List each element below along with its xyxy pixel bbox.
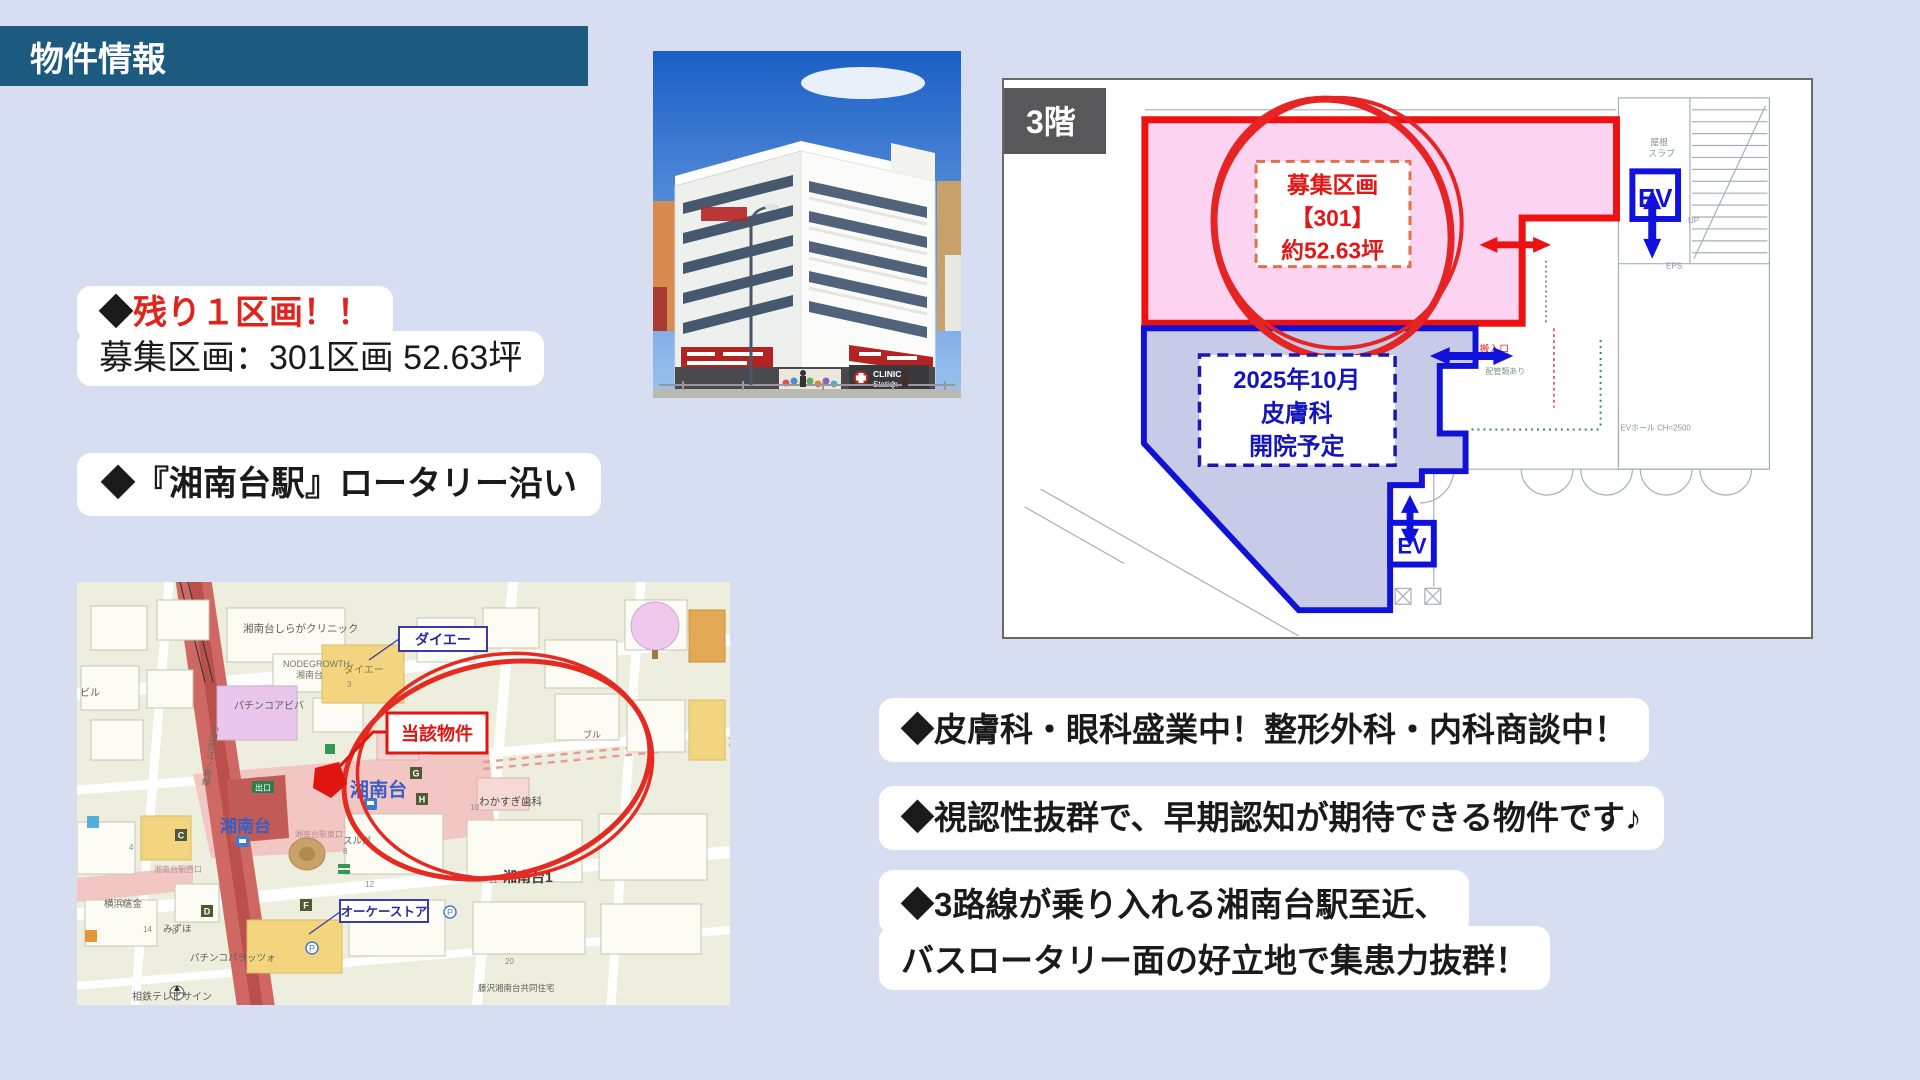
svg-text:湘南台駅西口: 湘南台駅西口 — [154, 864, 202, 874]
svg-text:ブル: ブル — [583, 729, 601, 740]
remaining-text: 残り１区画！！ — [133, 294, 371, 332]
recruit-label-box: 募集区画 【301】 約52.63坪 — [1256, 161, 1410, 266]
svg-text:13: 13 — [121, 899, 130, 908]
floorplan-panel: 3階 — [1002, 78, 1813, 639]
svg-text:ダイエー: ダイエー — [344, 663, 384, 676]
clinic-sign-line1: CLINIC — [873, 369, 901, 379]
benefit-3: ◆3路線が乗り入れる湘南台駅至近、 バスロータリー面の好立地で集患力抜群！ — [879, 870, 1550, 990]
svg-text:みずほ: みずほ — [163, 924, 192, 935]
tenant-label-box: 2025年10月 皮膚科 開院予定 — [1199, 355, 1395, 465]
station-name-label: 湘南台 — [220, 816, 271, 836]
svg-text:4: 4 — [129, 843, 134, 852]
note-roof-1: 屋根 — [1650, 137, 1668, 148]
building: CLINIC Station ← 入口 — [675, 141, 935, 398]
benefit-3-line2: バスロータリー面の好立地で集患力抜群！ — [879, 926, 1550, 990]
station-highlight: ◆『湘南台駅』ロータリー沿い — [77, 453, 601, 516]
page-title-banner: 物件情報 — [0, 26, 588, 86]
location-map: 出口 C D F G H P P 湘南台しらがクリニック NODEGROWTH … — [77, 582, 730, 1005]
svg-text:3: 3 — [347, 680, 352, 689]
floor-badge: 3階 — [1004, 88, 1106, 154]
svg-text:C: C — [178, 831, 185, 841]
svg-text:F: F — [303, 901, 309, 911]
aviva-building — [217, 686, 297, 740]
svg-text:14: 14 — [143, 925, 152, 934]
svg-text:当該物件: 当該物件 — [401, 723, 473, 744]
svg-text:相鉄テレビサイン: 相鉄テレビサイン — [132, 990, 212, 1003]
benefit-2: ◆視認性抜群で、早期認知が期待できる物件です♪ — [879, 786, 1664, 850]
exit-icon: 出口 — [255, 783, 271, 793]
svg-text:藤沢湘南台共同住宅: 藤沢湘南台共同住宅 — [478, 983, 555, 993]
svg-text:H: H — [419, 795, 426, 805]
recruit-line1: 募集区画 — [1286, 172, 1378, 198]
note-ev-hall: EVホール CH=2500 — [1620, 423, 1691, 432]
svg-text:P: P — [447, 908, 453, 918]
bus-rotary-center — [299, 847, 315, 861]
svg-text:湘南台: 湘南台 — [296, 669, 323, 680]
building-photo: CLINIC Station ← 入口 — [653, 51, 961, 398]
svg-text:8: 8 — [172, 927, 177, 936]
svg-text:パチンコアビバ: パチンコアビバ — [234, 700, 304, 712]
elevator-top: EV — [1632, 171, 1678, 258]
svg-text:ビル: ビル — [80, 687, 100, 699]
tenant-line2: 皮膚科 — [1261, 401, 1333, 428]
recruit-line2: 【301】 — [1291, 205, 1375, 231]
benefit-3-line1: ◆3路線が乗り入れる湘南台駅至近、 — [879, 870, 1469, 934]
svg-text:NODEGROWTH: NODEGROWTH — [283, 659, 350, 669]
map-svg: 出口 C D F G H P P 湘南台しらがクリニック NODEGROWTH … — [77, 582, 730, 1005]
svg-text:湘南台しらがクリニック: 湘南台しらがクリニック — [243, 622, 359, 635]
svg-text:パチンコパラッツォ: パチンコパラッツォ — [190, 953, 276, 964]
tenant-line3: 開院予定 — [1249, 432, 1344, 460]
note-eps: EPS — [1666, 262, 1682, 271]
svg-text:D: D — [204, 907, 211, 917]
svg-text:G: G — [412, 769, 419, 779]
floorplan-svg: 屋根 スラブ EVホール CH=2500 UP EPS 配管類あり 搬入口 募集… — [1004, 80, 1811, 637]
svg-text:わかすぎ歯科: わかすぎ歯科 — [479, 795, 542, 808]
diamond-bullet: ◆ — [99, 294, 133, 332]
svg-text:湘南台駅東口: 湘南台駅東口 — [295, 829, 343, 839]
svg-text:10: 10 — [470, 803, 479, 812]
svg-text:P: P — [309, 944, 315, 954]
elevator-bottom: EV — [1390, 495, 1434, 565]
note-up: UP — [1688, 216, 1699, 225]
side-sign — [701, 207, 747, 221]
svg-text:12: 12 — [365, 880, 374, 889]
svg-text:8: 8 — [343, 847, 348, 856]
svg-text:20: 20 — [505, 957, 514, 966]
sun-glare — [801, 67, 925, 99]
building-photo-svg: CLINIC Station ← 入口 — [653, 51, 961, 398]
svg-text:ダイエー: ダイエー — [415, 632, 471, 648]
section-text: 募集区画：301区画 52.63坪 — [77, 331, 544, 386]
note-roof-2: スラブ — [1648, 147, 1675, 158]
page-title: 物件情報 — [30, 32, 166, 81]
tenant-line1: 2025年10月 — [1233, 366, 1360, 394]
benefit-1: ◆皮膚科・眼科盛業中！整形外科・内科商談中！ — [879, 698, 1649, 762]
note-pipes: 配管類あり — [1485, 366, 1525, 376]
recruit-line3: 約52.63坪 — [1281, 238, 1384, 264]
highlight-remaining-line: ◆残り１区画！！ — [77, 286, 393, 341]
svg-text:オーケーストア: オーケーストア — [341, 905, 428, 919]
highlight-remaining-block: ◆残り１区画！！ 募集区画：301区画 52.63坪 — [77, 286, 544, 386]
